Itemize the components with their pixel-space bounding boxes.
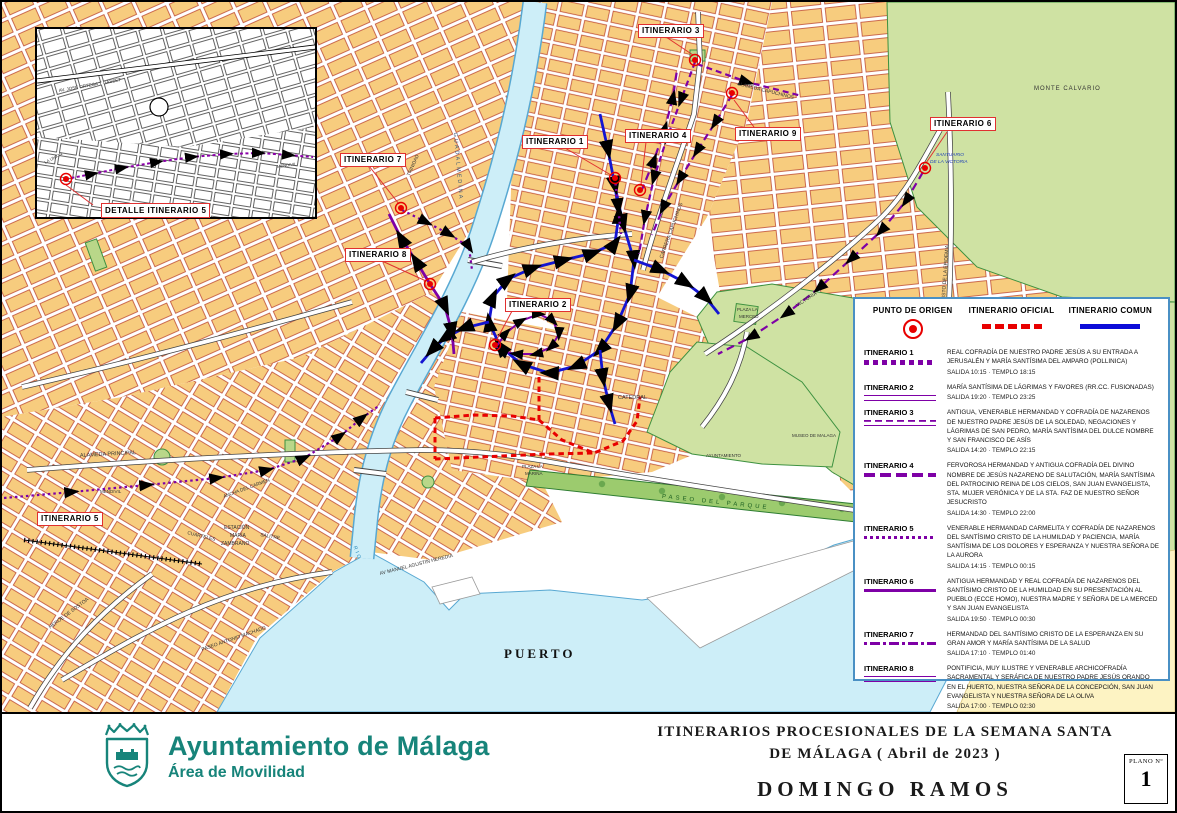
map-text-label: CARRERA CAPUCHINOS xyxy=(660,202,685,259)
dept-name: Área de Movilidad xyxy=(168,764,489,782)
itinerario-map-label: ITINERARIO 9 xyxy=(735,127,801,141)
itinerario-name: ITINERARIO 2 xyxy=(864,383,940,392)
itinerario-times: SALIDA 17:00 · TEMPLO 02:30 xyxy=(947,703,1159,710)
map-text-label: AV MANUEL AGUSTIN HEREDIA xyxy=(379,554,453,577)
map-text-label: ANCHA DEL CARMEN xyxy=(223,479,271,500)
itinerario-line-swatch xyxy=(864,642,936,645)
itinerario-description: FERVOROSA HERMANDAD Y ANTIGUA COFRADÍA D… xyxy=(947,461,1159,507)
itinerario-line-swatch xyxy=(864,676,936,682)
city-logo: Ayuntamiento de Málaga Área de Movilidad xyxy=(100,722,489,790)
itinerario-line-swatch xyxy=(864,536,936,539)
itinerario-times: SALIDA 14:30 · TEMPLO 22:00 xyxy=(947,510,1159,517)
itinerario-description: MARÍA SANTÍSIMA DE LÁGRIMAS Y FAVORES (R… xyxy=(947,383,1159,392)
itinerario-line-swatch xyxy=(864,420,936,426)
map-text-label: AV. JOSE ORTEGA Y GASSET xyxy=(59,78,122,93)
itinerario-description: ANTIGUA, VENERABLE HERMANDAD Y COFRADÍA … xyxy=(947,408,1159,445)
map-text-label: CUARTELES xyxy=(186,532,215,544)
legend-entry: ITINERARIO 3 ANTIGUA, VENERABLE HERMANDA… xyxy=(864,408,1159,454)
map-text-label: PLAZA LA xyxy=(737,308,758,313)
map-text-label: PUERTO xyxy=(504,647,575,660)
map-text-label: ZAMBRANO xyxy=(221,542,249,547)
itinerario-map-label: ITINERARIO 3 xyxy=(638,24,704,38)
itinerario-name: ITINERARIO 6 xyxy=(864,577,940,586)
map-text-label: MUSEO DE MALAGA xyxy=(792,434,836,439)
plan-sheet: ITINERARIO 1ITINERARIO 2ITINERARIO 3ITIN… xyxy=(0,0,1177,813)
itinerario-name: ITINERARIO 4 xyxy=(864,461,940,470)
itinerario-description: HERMANDAD DEL SANTÍSIMO CRISTO DE LA ESP… xyxy=(947,630,1159,648)
map-text-label: ALAMEDA CAPUCHINOS xyxy=(736,82,794,101)
itinerario-map-label: ITINERARIO 7 xyxy=(340,153,406,167)
map-text-label: AYUNTAMIENTO xyxy=(706,454,741,459)
itinerario-times: SALIDA 14:15 · TEMPLO 00:15 xyxy=(947,563,1159,570)
itinerario-map-label: ITINERARIO 4 xyxy=(625,129,691,143)
map-text-label: GUADALMEDINA xyxy=(451,133,462,201)
itinerario-name: ITINERARIO 5 xyxy=(864,524,940,533)
legend-entry: ITINERARIO 4 FERVOROSA HERMANDAD Y ANTIG… xyxy=(864,461,1159,516)
map-text-label: MENDIVIL xyxy=(277,162,297,169)
malaga-crest-icon xyxy=(100,722,154,790)
map-text-label: CRISTO DE LA EPIDEMIA xyxy=(942,245,951,305)
itinerario-map-label: ITINERARIO 8 xyxy=(345,248,411,262)
legend-comun-label: ITINERARIO COMUN xyxy=(1069,306,1152,315)
itinerario-map-label: ITINERARIO 5 xyxy=(37,512,103,526)
itinerario-name: ITINERARIO 8 xyxy=(864,664,940,673)
map-text-label: LA UNION xyxy=(44,152,63,165)
legend-oficial-label: ITINERARIO OFICIAL xyxy=(969,306,1055,315)
map-text-label: CATEDRAL xyxy=(618,396,647,402)
legend-origin-label: PUNTO DE ORIGEN xyxy=(873,306,952,315)
sheet-title-day: DOMINGO RAMOS xyxy=(650,777,1120,802)
map-text-label: MARINA xyxy=(525,472,543,477)
org-name: Ayuntamiento de Málaga xyxy=(168,731,489,762)
map-canvas: ITINERARIO 1ITINERARIO 2ITINERARIO 3ITIN… xyxy=(2,2,1175,714)
itinerario-times: SALIDA 10:15 · TEMPLO 18:15 xyxy=(947,369,1159,376)
legend-entries: ITINERARIO 1 REAL COFRADÍA DE NUESTRO PA… xyxy=(864,348,1159,714)
map-text-label: VICTORIA xyxy=(796,292,818,309)
legend-header: PUNTO DE ORIGEN ITINERARIO OFICIAL ITINE… xyxy=(864,306,1159,339)
itinerario-line-swatch xyxy=(864,473,936,476)
itinerario-times: SALIDA 19:50 · TEMPLO 00:30 xyxy=(947,616,1159,623)
map-text-label: PLAZA LA xyxy=(522,465,543,470)
map-text-label: RIO xyxy=(352,546,362,562)
comun-route-swatch xyxy=(1080,324,1140,329)
map-text-label: DE LA VICTORIA xyxy=(930,161,968,166)
map-text-label: SALITRE xyxy=(260,534,281,542)
map-text-label: SANTUARIO xyxy=(936,154,964,159)
itinerario-description: VENERABLE HERMANDAD CARMELITA Y COFRADÍA… xyxy=(947,524,1159,561)
map-text-label: MARÍA xyxy=(230,534,246,539)
itinerario-name: ITINERARIO 7 xyxy=(864,630,940,639)
itinerario-description: PONTIFICIA, MUY ILUSTRE Y VENERABLE ARCH… xyxy=(947,664,1159,701)
legend-entry: ITINERARIO 2 MARÍA SANTÍSIMA DE LÁGRIMAS… xyxy=(864,383,1159,402)
itinerario-name: ITINERARIO 1 xyxy=(864,348,940,357)
legend-entry: ITINERARIO 6 ANTIGUA HERMANDAD Y REAL CO… xyxy=(864,577,1159,623)
legend-entry: ITINERARIO 5 VENERABLE HERMANDAD CARMELI… xyxy=(864,524,1159,570)
itinerario-line-swatch xyxy=(864,395,936,401)
legend-entry: ITINERARIO 8 PONTIFICIA, MUY ILUSTRE Y V… xyxy=(864,664,1159,710)
itinerario-map-label: ITINERARIO 2 xyxy=(505,298,571,312)
legend-entry: ITINERARIO 7 HERMANDAD DEL SANTÍSIMO CRI… xyxy=(864,630,1159,658)
sheet-title: ITINERARIOS PROCESIONALES DE LA SEMANA S… xyxy=(650,724,1120,802)
plano-number: 1 xyxy=(1125,768,1167,790)
map-text-label: PASEO ANTONIO MACHADO xyxy=(201,626,267,653)
itinerario-line-swatch xyxy=(864,589,936,593)
title-block-bar: Ayuntamiento de Málaga Área de Movilidad… xyxy=(2,714,1175,813)
sheet-title-line1: ITINERARIOS PROCESIONALES DE LA SEMANA S… xyxy=(650,724,1120,741)
origin-point-icon xyxy=(903,319,923,339)
itinerario-times: SALIDA 17:10 · TEMPLO 01:40 xyxy=(947,650,1159,657)
map-text-label: TRINIDAD xyxy=(408,155,422,178)
map-text-label: MONTE CALVARIO xyxy=(1034,86,1101,92)
itinerario-map-label: ITINERARIO 1 xyxy=(522,135,588,149)
itinerario-description: ANTIGUA HERMANDAD Y REAL COFRADÍA DE NAZ… xyxy=(947,577,1159,614)
itinerario-times: SALIDA 19:20 · TEMPLO 23:25 xyxy=(947,394,1159,401)
itinerario-line-swatch xyxy=(864,360,936,365)
itinerario-times: SALIDA 14:20 · TEMPLO 22:15 xyxy=(947,447,1159,454)
oficial-route-swatch xyxy=(982,324,1042,329)
map-text-label: ALAMEDA PRINCIPAL xyxy=(80,451,136,459)
inset-detail-map: DETALLE ITINERARIO 5 AV. JOSE ORTEGA Y G… xyxy=(35,27,317,219)
itinerario-description: REAL COFRADÍA DE NUESTRO PADRE JESÚS A S… xyxy=(947,348,1159,366)
itinerario-name: ITINERARIO 3 xyxy=(864,408,940,417)
legend-panel: PUNTO DE ORIGEN ITINERARIO OFICIAL ITINE… xyxy=(853,297,1170,681)
map-text-label: ESTACIÓN xyxy=(224,526,249,531)
map-text-label: PASEO DEL PARQUE xyxy=(662,494,770,511)
plano-label: PLANO Nº xyxy=(1125,758,1167,765)
map-text-label: MERCED xyxy=(739,315,759,320)
plano-number-box: PLANO Nº 1 xyxy=(1124,754,1168,804)
map-text-label: HEROE DE SOSTOA xyxy=(48,597,90,630)
itinerario-map-label: ITINERARIO 6 xyxy=(930,117,996,131)
map-text-label: MENDIVIL xyxy=(100,490,121,495)
sheet-title-line2: DE MÁLAGA ( Abril de 2023 ) xyxy=(650,746,1120,763)
inset-label-layer: AV. JOSE ORTEGA Y GASSETLA UNIONMENDIVIL xyxy=(37,29,315,217)
inset-title: DETALLE ITINERARIO 5 xyxy=(101,203,210,218)
legend-entry: ITINERARIO 1 REAL COFRADÍA DE NUESTRO PA… xyxy=(864,348,1159,376)
